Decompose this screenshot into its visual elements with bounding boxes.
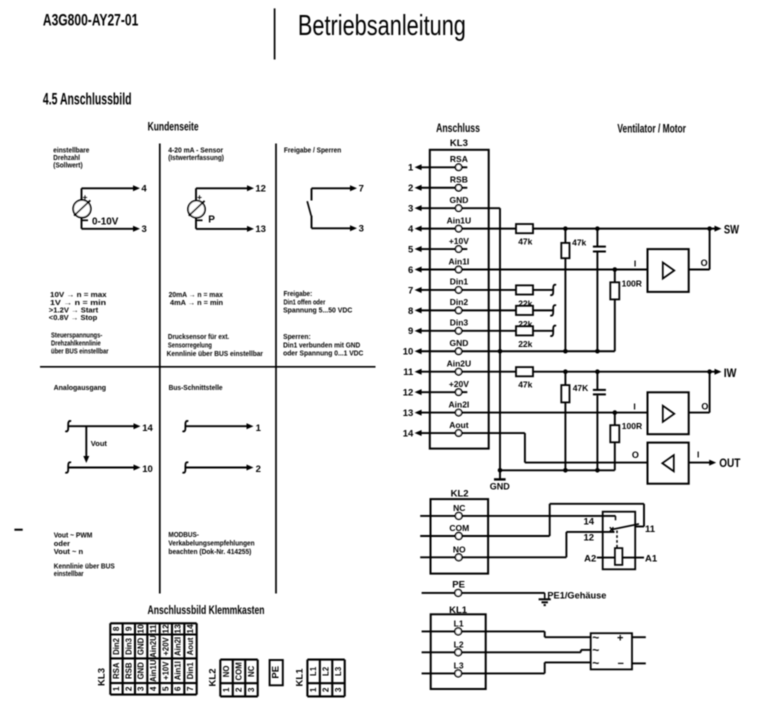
svg-text:10: 10 bbox=[137, 624, 146, 634]
svg-text:OUT: OUT bbox=[719, 458, 740, 470]
svg-text:4: 4 bbox=[149, 686, 158, 691]
svg-text:7: 7 bbox=[359, 184, 364, 195]
svg-text:RSA: RSA bbox=[450, 154, 468, 164]
svg-text:11: 11 bbox=[403, 367, 414, 378]
svg-text:3: 3 bbox=[334, 687, 343, 692]
svg-text:Bus-Schnittstelle: Bus-Schnittstelle bbox=[169, 383, 223, 392]
svg-text:22k: 22k bbox=[518, 319, 532, 329]
svg-text:A2: A2 bbox=[584, 554, 596, 565]
svg-text:Ain2U: Ain2U bbox=[447, 359, 472, 369]
svg-text:RSA: RSA bbox=[112, 662, 121, 679]
svg-text:12: 12 bbox=[403, 388, 414, 399]
svg-text:22k: 22k bbox=[518, 339, 532, 349]
svg-text:I: I bbox=[697, 449, 699, 459]
svg-text:3: 3 bbox=[142, 224, 147, 235]
svg-text:Din2: Din2 bbox=[112, 637, 121, 655]
svg-text:5: 5 bbox=[408, 244, 414, 255]
svg-text:RSB: RSB bbox=[450, 175, 468, 185]
svg-text:3: 3 bbox=[247, 687, 256, 692]
svg-text:0-10V: 0-10V bbox=[92, 216, 119, 227]
svg-text:13: 13 bbox=[403, 408, 414, 419]
svg-text:PE: PE bbox=[271, 666, 282, 679]
svg-text:KL2: KL2 bbox=[451, 489, 469, 500]
svg-text:L1: L1 bbox=[454, 619, 464, 629]
svg-text:COM: COM bbox=[449, 523, 469, 533]
svg-text:2: 2 bbox=[256, 464, 261, 475]
svg-text:11: 11 bbox=[149, 624, 158, 633]
svg-text:NC: NC bbox=[453, 503, 465, 513]
svg-text:9: 9 bbox=[124, 626, 133, 631]
svg-text:Din1: Din1 bbox=[450, 277, 469, 287]
svg-text:8: 8 bbox=[408, 306, 413, 317]
svg-text:1: 1 bbox=[256, 423, 262, 434]
svg-text:L3: L3 bbox=[454, 661, 464, 671]
svg-text:I: I bbox=[633, 401, 635, 411]
svg-text:8: 8 bbox=[112, 626, 121, 631]
svg-text:Din1: Din1 bbox=[186, 662, 195, 680]
svg-text:Freigabe / Sperren: Freigabe / Sperren bbox=[284, 146, 342, 155]
svg-text:GND: GND bbox=[490, 481, 511, 491]
svg-text:+20V: +20V bbox=[161, 636, 170, 655]
svg-text:11: 11 bbox=[645, 524, 656, 535]
svg-text:KL3: KL3 bbox=[450, 138, 468, 149]
svg-text:2: 2 bbox=[408, 183, 413, 194]
svg-text:NO: NO bbox=[222, 666, 231, 678]
svg-text:12: 12 bbox=[161, 624, 170, 634]
svg-text:1: 1 bbox=[309, 687, 318, 692]
svg-text:I: I bbox=[634, 258, 636, 268]
svg-text:(Sollwert): (Sollwert) bbox=[53, 161, 83, 170]
svg-text:Din3: Din3 bbox=[124, 637, 133, 655]
svg-text:Ain1U: Ain1U bbox=[149, 659, 158, 682]
svg-text:7: 7 bbox=[408, 285, 413, 296]
svg-text:PE1/Gehäuse: PE1/Gehäuse bbox=[547, 591, 606, 602]
svg-text:KL3: KL3 bbox=[96, 668, 107, 686]
svg-text:beachten (Dok-Nr. 414255): beachten (Dok-Nr. 414255) bbox=[168, 547, 251, 556]
svg-text:14: 14 bbox=[142, 423, 153, 434]
svg-text:+: + bbox=[617, 632, 623, 644]
svg-text:GND: GND bbox=[137, 662, 146, 680]
svg-text:einstellbar: einstellbar bbox=[54, 569, 84, 578]
svg-text:3: 3 bbox=[137, 686, 146, 691]
svg-text:L2: L2 bbox=[454, 640, 464, 650]
svg-text:Betriebsanleitung: Betriebsanleitung bbox=[298, 10, 466, 42]
svg-text:Vout: Vout bbox=[91, 439, 108, 448]
svg-text:A1: A1 bbox=[645, 554, 658, 565]
svg-text:22k: 22k bbox=[518, 298, 532, 308]
svg-text:IW: IW bbox=[724, 368, 737, 380]
svg-text:über BUS einstellbar: über BUS einstellbar bbox=[51, 346, 109, 355]
svg-text:1: 1 bbox=[408, 163, 414, 174]
svg-text:Kennlinie über BUS einstellbar: Kennlinie über BUS einstellbar bbox=[167, 349, 263, 358]
svg-text:13: 13 bbox=[255, 224, 266, 235]
svg-text:2: 2 bbox=[235, 687, 244, 692]
svg-text:Ain1U: Ain1U bbox=[447, 215, 472, 225]
svg-text:O: O bbox=[632, 450, 639, 460]
svg-text:4.5 Anschlussbild: 4.5 Anschlussbild bbox=[43, 90, 132, 108]
svg-text:COM: COM bbox=[235, 662, 244, 680]
svg-text:Ventilator / Motor: Ventilator / Motor bbox=[617, 124, 686, 136]
svg-text:Ain2I: Ain2I bbox=[449, 399, 470, 409]
svg-text:Ain1I: Ain1I bbox=[449, 256, 470, 266]
svg-text:+: + bbox=[197, 192, 202, 202]
svg-text:Aout: Aout bbox=[449, 420, 469, 430]
svg-text:3: 3 bbox=[408, 204, 413, 215]
svg-text:+10V: +10V bbox=[449, 236, 469, 246]
svg-text:9: 9 bbox=[408, 326, 413, 337]
svg-text:oder Spannung 0...1 VDC: oder Spannung 0...1 VDC bbox=[283, 349, 364, 358]
svg-text:GND: GND bbox=[449, 195, 468, 205]
svg-text:L3: L3 bbox=[334, 666, 343, 676]
svg-text:~: ~ bbox=[592, 656, 599, 670]
svg-text:4mA → n = min: 4mA → n = min bbox=[170, 298, 223, 307]
svg-text:4: 4 bbox=[141, 183, 147, 194]
svg-text:Spannung 5...50 VDC: Spannung 5...50 VDC bbox=[283, 305, 353, 314]
svg-text:NO: NO bbox=[453, 545, 466, 555]
svg-text:Ain2U: Ain2U bbox=[149, 635, 158, 658]
svg-text:6: 6 bbox=[408, 265, 413, 276]
svg-text:14: 14 bbox=[186, 624, 195, 634]
svg-text:+20V: +20V bbox=[449, 379, 469, 389]
svg-text:47K: 47K bbox=[573, 383, 589, 393]
svg-text:Ain2I: Ain2I bbox=[174, 637, 183, 656]
svg-text:L1: L1 bbox=[309, 666, 318, 676]
svg-text:−: − bbox=[618, 658, 624, 670]
svg-text:Kundenseite: Kundenseite bbox=[148, 121, 199, 133]
svg-text:47k: 47k bbox=[518, 236, 532, 246]
svg-text:RSB: RSB bbox=[124, 662, 133, 679]
svg-text:L2: L2 bbox=[322, 666, 331, 676]
svg-text:12: 12 bbox=[255, 183, 266, 194]
svg-text:1: 1 bbox=[222, 687, 231, 692]
svg-text:13: 13 bbox=[174, 624, 183, 634]
svg-text:(Istwerterfassung): (Istwerterfassung) bbox=[168, 153, 224, 162]
svg-text:KL1: KL1 bbox=[295, 668, 306, 687]
svg-text:GND: GND bbox=[137, 637, 146, 655]
svg-text:47k: 47k bbox=[518, 379, 532, 389]
svg-text:4: 4 bbox=[408, 224, 414, 235]
svg-text:Ain1I: Ain1I bbox=[174, 661, 183, 680]
svg-text:2: 2 bbox=[124, 686, 133, 691]
svg-text:1: 1 bbox=[112, 686, 121, 691]
svg-text:Din2: Din2 bbox=[450, 297, 469, 307]
svg-text:3: 3 bbox=[359, 223, 364, 234]
svg-text:KL2: KL2 bbox=[208, 669, 219, 687]
svg-text:10: 10 bbox=[403, 347, 414, 358]
svg-text:Vout ~ n: Vout ~ n bbox=[54, 547, 84, 556]
svg-text:P: P bbox=[208, 215, 215, 226]
svg-text:2: 2 bbox=[322, 687, 331, 692]
svg-text:O: O bbox=[701, 258, 708, 268]
svg-text:10: 10 bbox=[142, 464, 153, 475]
svg-text:Anschlussbild Klemmkasten: Anschlussbild Klemmkasten bbox=[148, 605, 265, 617]
svg-text:Anschluss: Anschluss bbox=[436, 123, 480, 135]
svg-text:NC: NC bbox=[247, 665, 256, 677]
svg-text:GND: GND bbox=[449, 338, 468, 348]
svg-text:O: O bbox=[701, 401, 708, 411]
svg-text:5: 5 bbox=[161, 686, 170, 691]
svg-text:Aout: Aout bbox=[186, 637, 195, 655]
svg-text:7: 7 bbox=[186, 686, 195, 691]
svg-text:A3G800-AY27-01: A3G800-AY27-01 bbox=[43, 11, 138, 30]
svg-text:<0.8V → Stop: <0.8V → Stop bbox=[49, 313, 98, 322]
svg-text:14: 14 bbox=[584, 517, 595, 528]
svg-text:100R: 100R bbox=[622, 278, 642, 288]
svg-text:12: 12 bbox=[584, 532, 595, 543]
svg-text:SW: SW bbox=[724, 225, 739, 237]
svg-text:Analogausgang: Analogausgang bbox=[54, 383, 107, 392]
svg-text:+10V: +10V bbox=[161, 661, 170, 680]
svg-text:14: 14 bbox=[403, 428, 414, 439]
svg-text:Din3: Din3 bbox=[450, 318, 469, 328]
svg-text:47k: 47k bbox=[572, 238, 586, 248]
svg-text:+: + bbox=[83, 192, 88, 202]
svg-text:6: 6 bbox=[174, 686, 183, 691]
svg-text:100R: 100R bbox=[622, 421, 642, 431]
